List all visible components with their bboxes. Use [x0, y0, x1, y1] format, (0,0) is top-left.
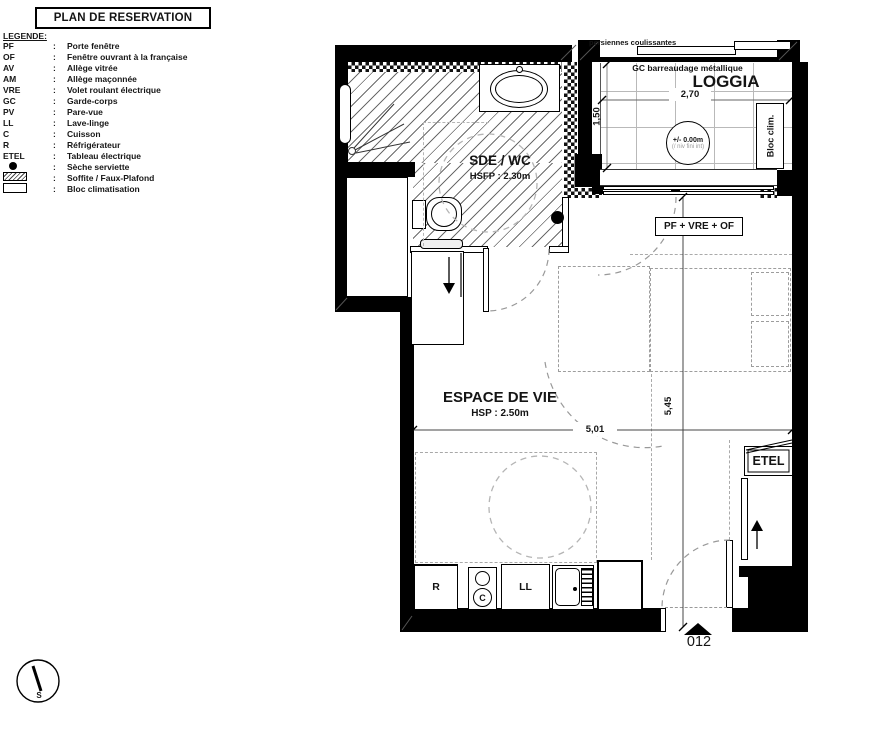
persiennes-label: persiennes coulissantes — [589, 38, 676, 47]
plan-annotations-layer — [0, 0, 880, 732]
dim-ticks — [409, 60, 796, 631]
floor-plan-sheet: PLAN DE RESERVATION LEGENDE: PF:Porte fe… — [0, 0, 880, 732]
dim-loggia-depth-label: 1,50 — [591, 97, 604, 137]
entry-door-swing-arc — [662, 540, 730, 608]
fridge-label: R — [414, 564, 458, 610]
washer-label: LL — [501, 564, 550, 610]
dim-living-depth-label: 5,45 — [661, 386, 675, 426]
closet-arrow-down-icon — [443, 257, 455, 294]
turning-circle-sdewc — [439, 134, 537, 232]
shower-head-icon — [349, 104, 411, 155]
loggia-door-swing-arc — [598, 197, 676, 275]
room-living-name: ESPACE DE VIE — [418, 388, 582, 406]
room-sdewc-name: SDE / WC — [425, 152, 575, 168]
room-living-ceiling: HSP : 2.50m — [418, 407, 582, 420]
sdewc-door-swing-arc — [487, 249, 549, 311]
window-combo-label: PF + VRE + OF — [655, 217, 743, 236]
room-sdewc-ceiling: HSFP : 2.30m — [425, 170, 575, 182]
turning-circle-living — [489, 456, 591, 558]
unit-number: 012 — [676, 633, 722, 651]
compass-south-label: S — [33, 689, 45, 701]
dim-loggia-width-label: 2,70 — [669, 88, 711, 101]
entry-arrow-up-icon — [751, 520, 763, 549]
corner-diagonals — [336, 42, 797, 630]
dim-living-width-label: 5,01 — [573, 422, 617, 436]
